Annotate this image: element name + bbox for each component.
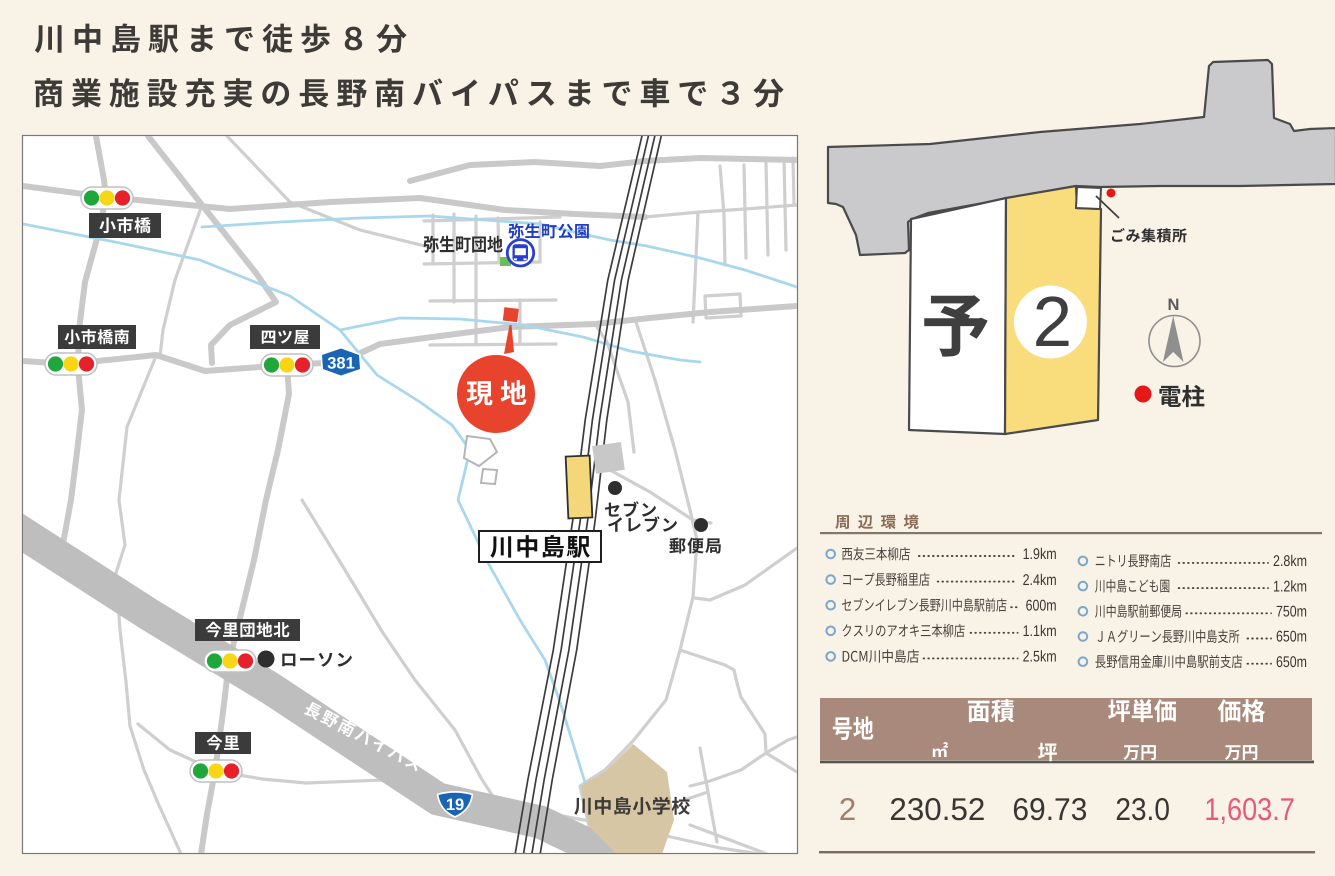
svg-text:2: 2 [839, 791, 857, 827]
svg-text:69.73: 69.73 [1012, 791, 1087, 827]
svg-text:600m: 600m [1026, 597, 1057, 614]
svg-text:381: 381 [327, 355, 355, 373]
svg-text:23.0: 23.0 [1115, 791, 1170, 827]
svg-text:1.1km: 1.1km [1023, 623, 1057, 640]
svg-text:1,603.7: 1,603.7 [1204, 791, 1295, 827]
svg-text:2: 2 [1033, 283, 1073, 362]
svg-text:230.52: 230.52 [889, 791, 985, 827]
svg-text:650m: 650m [1276, 654, 1307, 671]
svg-text:2.4km: 2.4km [1023, 572, 1057, 589]
svg-text:19: 19 [446, 796, 464, 814]
svg-text:2.8km: 2.8km [1273, 553, 1307, 570]
svg-text:1.2km: 1.2km [1273, 578, 1307, 595]
svg-text:1.9km: 1.9km [1023, 546, 1057, 563]
svg-text:650m: 650m [1276, 629, 1307, 646]
svg-text:2.5km: 2.5km [1023, 649, 1057, 666]
svg-text:N: N [1167, 296, 1179, 314]
svg-text:750m: 750m [1276, 604, 1307, 621]
